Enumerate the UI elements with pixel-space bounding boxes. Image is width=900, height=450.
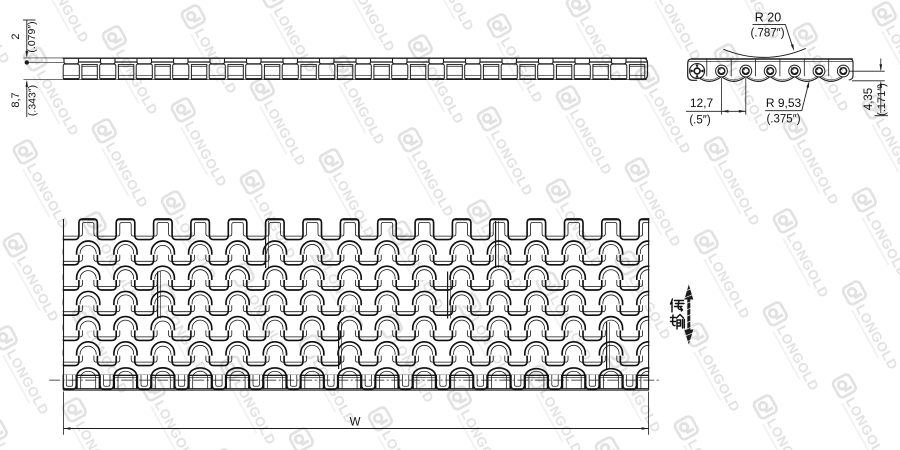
svg-text:W: W <box>350 417 361 429</box>
svg-text:R 20: R 20 <box>755 11 781 25</box>
svg-text:(.343″): (.343″) <box>27 85 39 116</box>
svg-text:4,35: 4,35 <box>863 88 875 110</box>
svg-text:12,7: 12,7 <box>690 96 714 110</box>
svg-text:(.375″): (.375″) <box>766 114 800 126</box>
svg-text:(.5″): (.5″) <box>689 115 710 127</box>
svg-text:2: 2 <box>10 33 22 39</box>
svg-text:R 9,53: R 9,53 <box>766 96 802 110</box>
svg-text:8,7: 8,7 <box>10 92 22 107</box>
svg-text:(.079″): (.079″) <box>26 21 38 52</box>
svg-text:(.171″): (.171″) <box>876 83 888 116</box>
svg-text:(.787″): (.787″) <box>750 28 784 40</box>
